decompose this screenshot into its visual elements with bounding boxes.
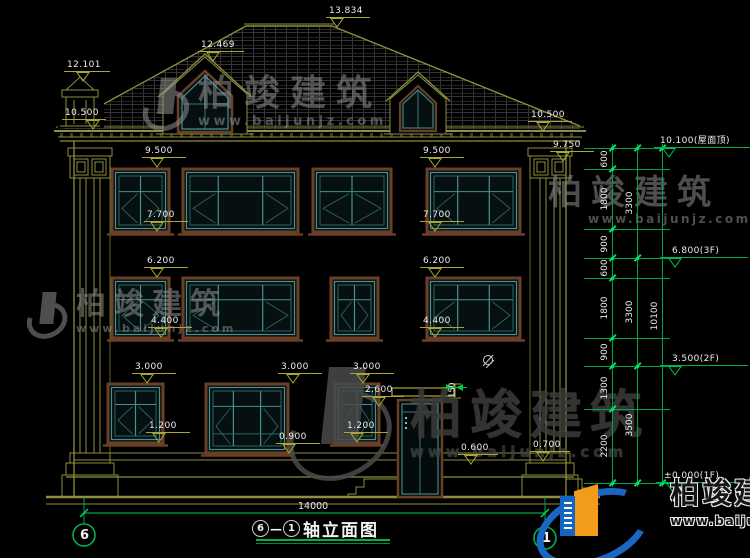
elevation-marker: 6.200 [144,256,188,268]
level-marker: 10.100(屋面顶) [654,136,750,148]
dimension-chain-part [636,147,639,150]
dimension-chain-part [584,258,670,259]
axis-bubble-left-label: 6 [80,528,89,543]
elevation-marker: 7.700 [144,210,188,222]
dimension-chain-part [584,409,670,410]
dimension-chain-part [611,408,614,411]
dimension-chain-part [584,278,670,279]
elevation-marker: 3.000 [132,362,176,374]
dimension-value: 1300 [600,376,610,399]
elevation-marker: 10.500 [62,108,106,120]
dimension-chain-part [612,144,613,487]
elevation-marker: 9.750 [550,140,594,152]
elevation-marker: 12.101 [64,60,110,72]
title-text: 轴立面图 [303,516,379,541]
dimension-chain-part [637,144,638,487]
elevation-marker: 6.200 [420,256,464,268]
title-axis-end: 1 [283,520,300,537]
dimension-chain-part [611,228,614,231]
dimension-chain-part [611,365,614,368]
dimension-chain-part [584,366,670,367]
title-axis-start: 6 [252,520,269,537]
elevation-marker: 0.900 [276,432,320,444]
dimension-value: 900 [600,343,610,360]
dimension-chain-part [584,148,670,149]
canopy-height-dim: 150 [448,382,457,397]
elevation-marker: 0.600 [458,443,498,455]
dimension-value: 1800 [600,188,610,211]
level-marker: 6.800(3F) [660,246,748,258]
elevation-marker: 3.000 [278,362,322,374]
cad-canvas: 柏竣建筑 www.baijunjz.com 柏竣建筑 www.baijunjz.… [0,0,750,558]
elevation-marker: 4.400 [420,316,464,328]
level-marker: 3.500(2F) [660,354,748,366]
entry-steps [348,479,398,497]
dimension-chain-part [636,365,639,368]
dimension-chain-part [662,144,663,487]
dimension-value: 600 [600,259,610,276]
dimension-chain-part [611,257,614,260]
dimension-value: 1800 [600,297,610,320]
elevation-marker: 9.500 [142,146,186,158]
elevation-marker: 4.400 [148,316,192,328]
dimension-chain-part [584,229,670,230]
brand-name: 柏竣建筑 [670,476,750,510]
dimension-value: 10100 [650,301,660,330]
dimension-chain-part [584,338,670,339]
elevation-marker: 12.469 [198,40,244,52]
dimension-chain-part [611,168,614,171]
title-underline [256,539,390,541]
brand-logo-icon [534,478,586,558]
dimension-value: 3300 [625,301,635,324]
dimension-chain-part [636,257,639,260]
elevation-marker: 1.200 [146,421,190,433]
elevation-marker: 7.700 [420,210,464,222]
elevation-marker: 2.600 [362,385,404,397]
dimension-value: 600 [600,150,610,167]
lamp-symbol [483,355,494,368]
elevation-marker: 9.500 [420,146,464,158]
dimension-chain-part [584,169,670,170]
entrance-door [392,384,461,497]
elevation-marker: 0.700 [530,440,570,452]
dimension-value: 3300 [625,192,635,215]
elevation-marker: 10.500 [528,110,572,122]
title-underline-2 [256,543,390,544]
dimension-value: 3500 [625,413,635,436]
dimension-value: 900 [600,235,610,252]
title-dash: — [270,522,282,536]
dimension-value: 2200 [600,435,610,458]
dimension-chain-part [611,277,614,280]
dimension-chain-part [611,147,614,150]
brand-logo: 柏竣建筑 www.baijunjz.com [534,478,750,558]
elevation-marker: 1.200 [344,421,388,433]
dimension-chain-part [611,337,614,340]
overall-width-dim: 14000 [298,501,328,512]
brand-url: www.baijunjz.com [670,513,750,528]
elevation-marker: 13.834 [326,6,370,18]
elevation-marker: 3.000 [350,362,394,374]
drawing-title: 6 — 1 轴立面图 [252,516,379,541]
